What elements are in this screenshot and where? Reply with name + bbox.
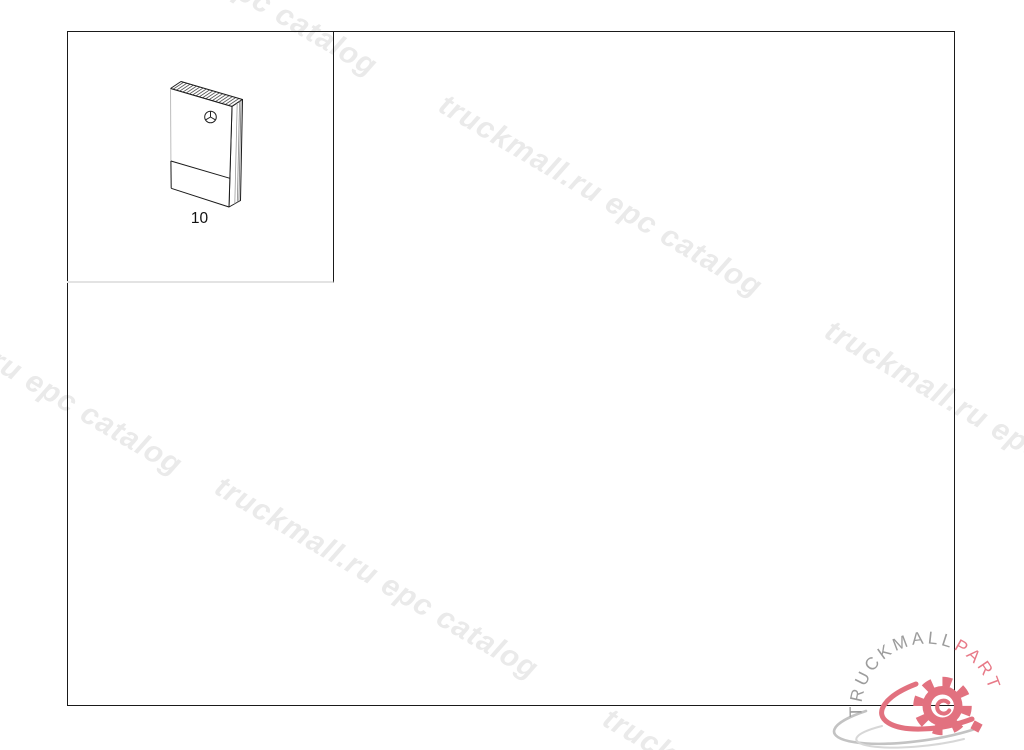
logo-text-truckmall: TRUCKMALL	[845, 627, 958, 717]
logo-brand-text: TRUCKMALLPARTS	[0, 0, 1006, 717]
catalog-page: truckmall.ru epc catalog truckmall.ru ep…	[0, 0, 1024, 750]
logo-text-parts: PARTS	[0, 0, 1006, 694]
truckmall-parts-logo: TRUCKMALLPARTS	[0, 0, 1024, 750]
